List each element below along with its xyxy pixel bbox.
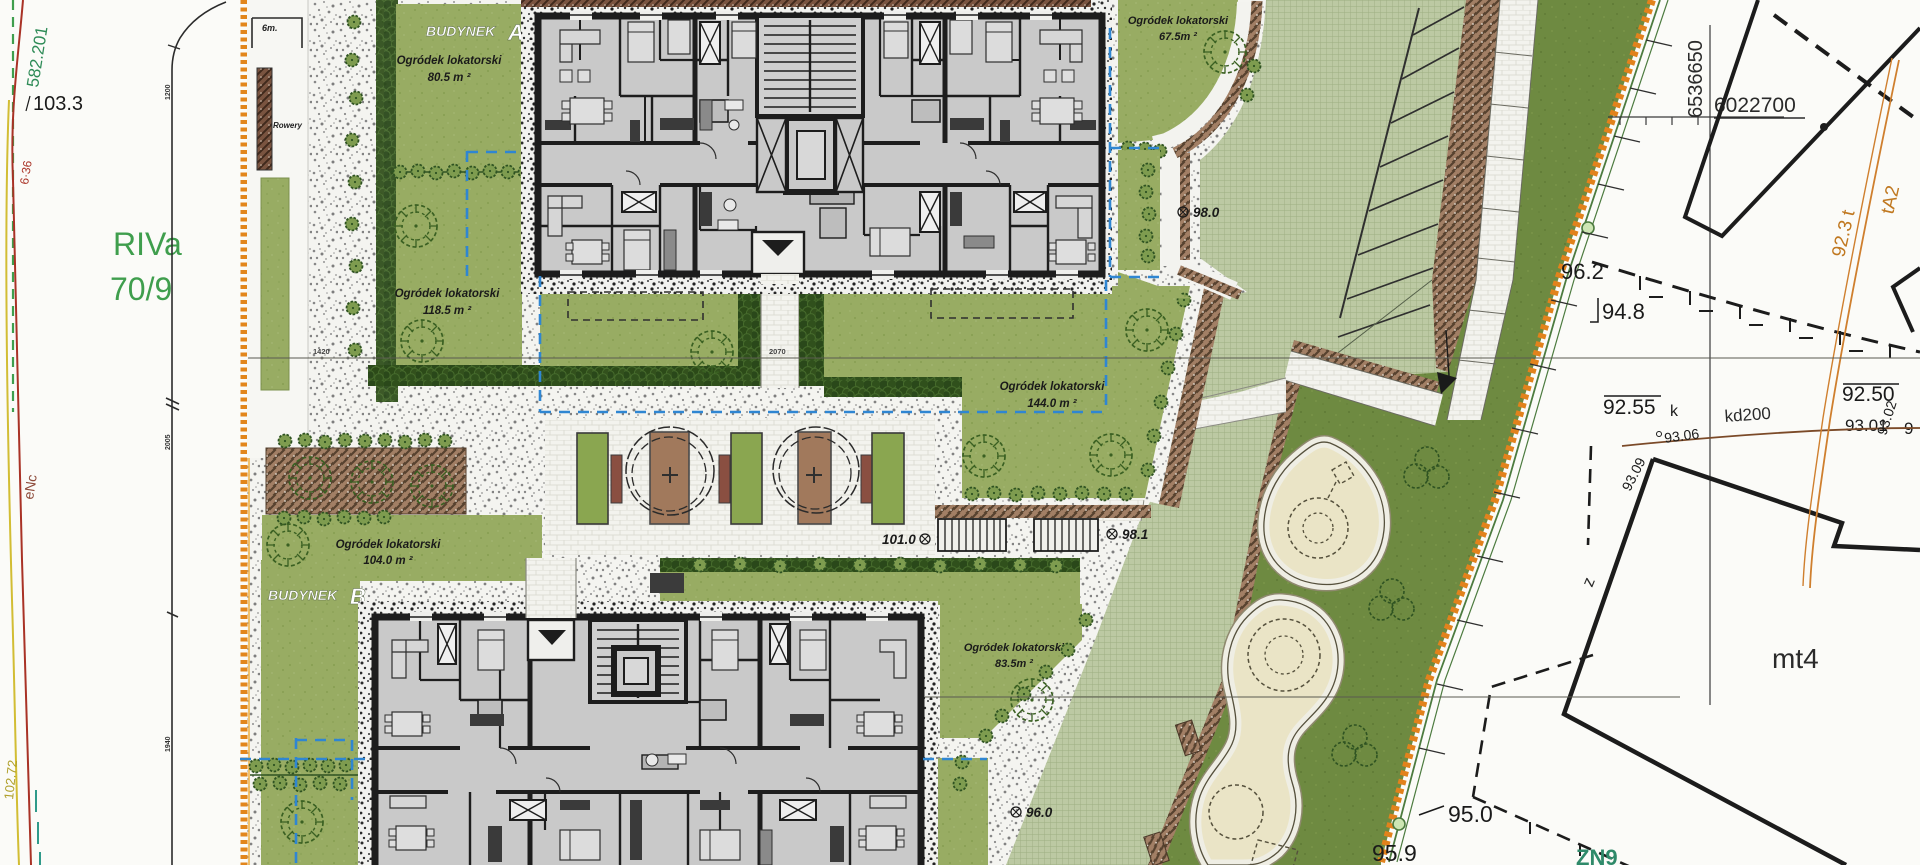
svg-text:95.9: 95.9: [1372, 840, 1417, 865]
svg-text:Ogródek lokatorski: Ogródek lokatorski: [336, 539, 442, 551]
svg-text:67.5m ²: 67.5m ²: [1159, 31, 1197, 43]
svg-text:80.5 m ²: 80.5 m ²: [428, 72, 472, 84]
svg-text:98.1: 98.1: [1122, 527, 1148, 542]
svg-text:104.0 m ²: 104.0 m ²: [363, 555, 413, 567]
svg-text:1420: 1420: [313, 347, 330, 356]
svg-text:70/9: 70/9: [110, 271, 172, 307]
svg-text:BUDYNEK: BUDYNEK: [426, 23, 496, 39]
svg-text:6m.: 6m.: [262, 23, 278, 33]
svg-text:98.0: 98.0: [1193, 205, 1220, 220]
svg-text:Ogródek lokatorski: Ogródek lokatorski: [1000, 381, 1106, 393]
svg-text:Ogródek lokatorski: Ogródek lokatorski: [964, 642, 1065, 654]
svg-text:118.5 m ²: 118.5 m ²: [423, 305, 473, 317]
svg-text:96.0: 96.0: [1026, 805, 1053, 820]
svg-text:94.8: 94.8: [1602, 299, 1645, 324]
svg-text:Ogródek lokatorski: Ogródek lokatorski: [397, 55, 503, 67]
svg-text:96.2: 96.2: [1561, 259, 1604, 284]
svg-text:144.0 m ²: 144.0 m ²: [1027, 398, 1077, 410]
svg-text:Ogródek lokatorski: Ogródek lokatorski: [1128, 15, 1229, 27]
svg-text:92.55: 92.55: [1603, 396, 1656, 419]
svg-text:95.0: 95.0: [1448, 801, 1493, 827]
svg-text:k: k: [1670, 403, 1679, 420]
svg-text:2005: 2005: [165, 434, 172, 450]
svg-text:kd200: kd200: [1724, 404, 1772, 426]
svg-text:2070: 2070: [769, 347, 786, 356]
svg-text:Rowery: Rowery: [273, 121, 302, 130]
svg-text:Ogródek lokatorski: Ogródek lokatorski: [395, 288, 501, 300]
svg-text:83.5m ²: 83.5m ²: [995, 658, 1033, 670]
svg-text:BUDYNEK: BUDYNEK: [268, 587, 338, 603]
svg-text:103.3: 103.3: [33, 93, 83, 115]
svg-text:101.0: 101.0: [882, 532, 916, 547]
svg-text:1200: 1200: [165, 84, 172, 100]
svg-text:6536650: 6536650: [1685, 40, 1707, 118]
svg-text:ZN9: ZN9: [1576, 845, 1618, 865]
svg-text:mt4: mt4: [1772, 643, 1819, 674]
svg-text:1940: 1940: [165, 736, 172, 752]
